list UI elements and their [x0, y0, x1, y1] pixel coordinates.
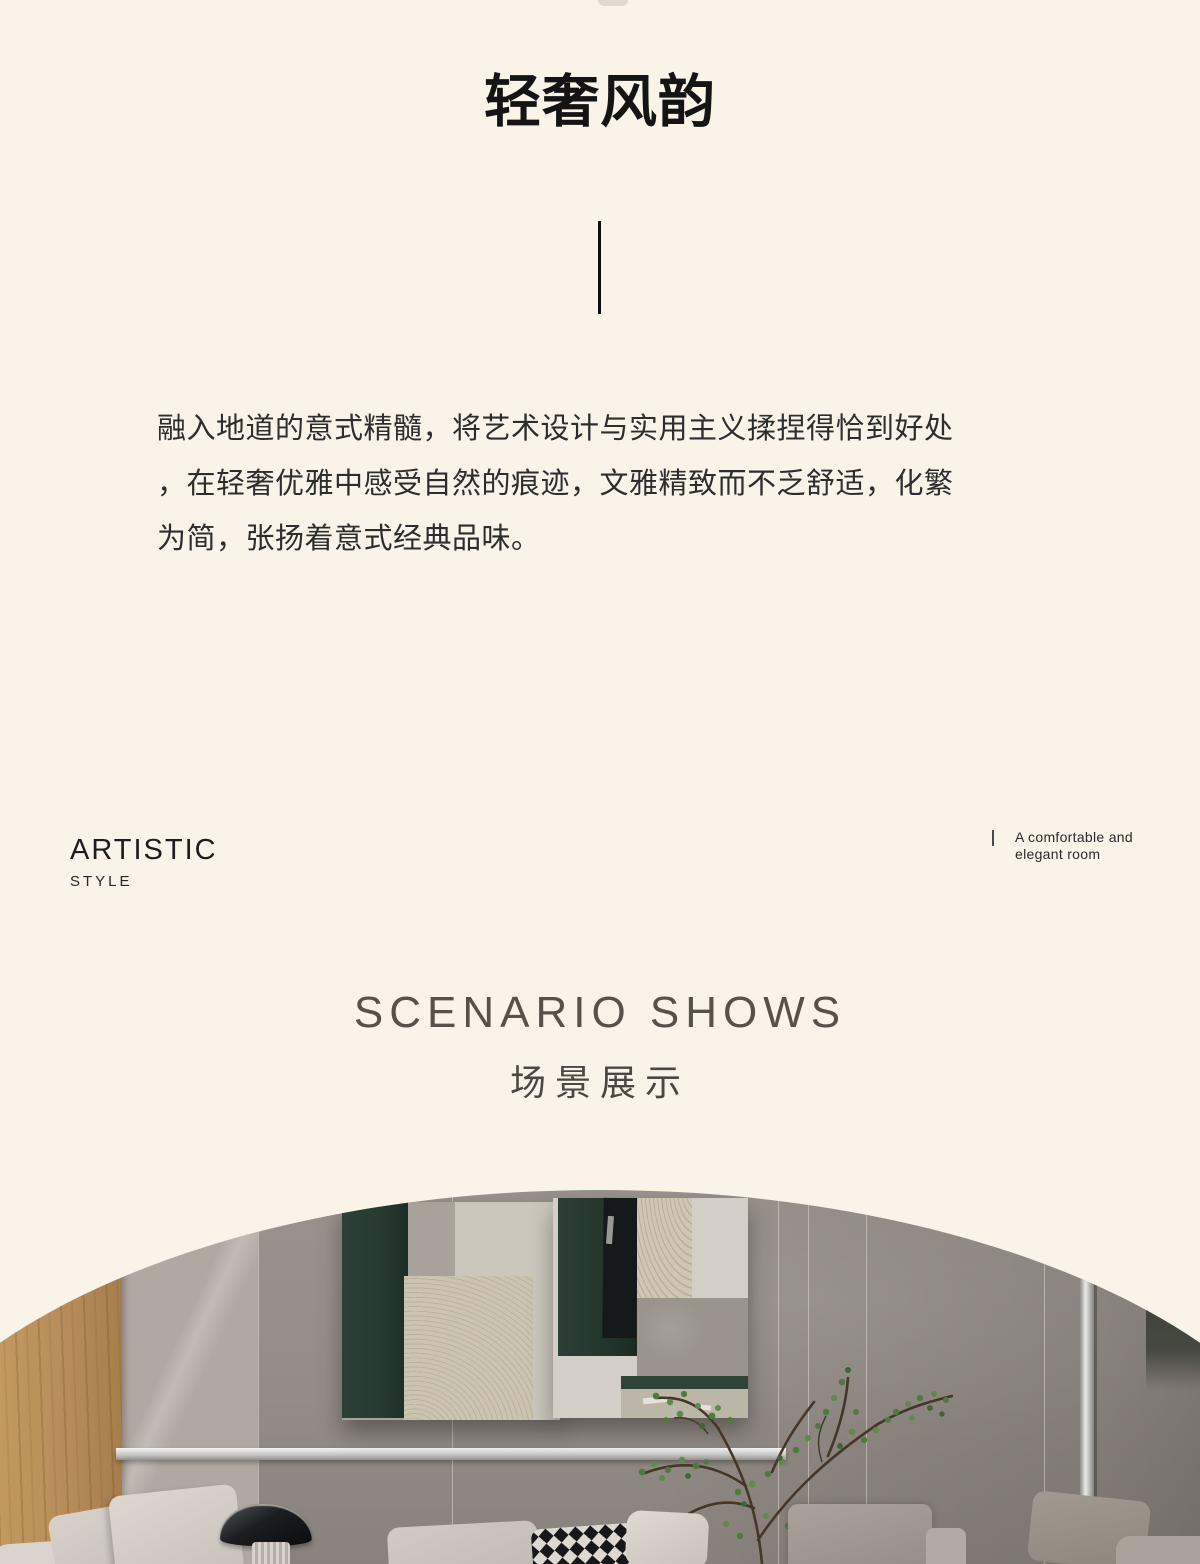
white-pillow: [625, 1510, 710, 1564]
product-detail-page: 轻奢风韵 融入地道的意式精髓，将艺术设计与实用主义揉捏得恰到好处 ，在轻奢优雅中…: [0, 0, 1200, 1564]
sofa-cushion: [387, 1520, 539, 1564]
scenario-photo: [0, 1190, 1200, 1564]
scenario-heading-zh: 场景展示: [0, 1054, 1200, 1106]
top-edge-artifact: [598, 0, 628, 6]
caption-divider-bar: [992, 830, 994, 846]
dark-wall-panel: [1146, 1190, 1200, 1390]
intro-line: ，在轻奢优雅中感受自然的痕迹，文雅精致而不乏舒适，化繁: [157, 457, 1057, 512]
armchair-arm: [1116, 1536, 1200, 1564]
sofa-arm: [926, 1528, 966, 1564]
vertical-divider: [598, 221, 601, 314]
caption-line: A comfortable and: [1015, 829, 1175, 846]
intro-line: 融入地道的意式精髓，将艺术设计与实用主义揉捏得恰到好处: [157, 402, 1057, 457]
scenario-heading-en: SCENARIO SHOWS: [0, 988, 1200, 1038]
artistic-style-label: ARTISTIC STYLE: [70, 836, 218, 890]
caption-line: elegant room: [1015, 846, 1175, 863]
intro-paragraph: 融入地道的意式精髓，将艺术设计与实用主义揉捏得恰到好处 ，在轻奢优雅中感受自然的…: [157, 402, 1057, 567]
houndstooth-pillow: [531, 1522, 638, 1564]
table-lamp-stem: [252, 1542, 290, 1564]
art-textured-panel: [404, 1276, 533, 1420]
art-green-block: [342, 1202, 408, 1418]
intro-line: 为简，张扬着意式经典品味。: [157, 512, 1057, 567]
wall-art-left: [342, 1202, 560, 1420]
section-title: 轻奢风韵: [0, 68, 1200, 136]
artistic-subtitle: STYLE: [70, 873, 218, 890]
sofa-back-cushion: [788, 1504, 932, 1564]
english-caption: A comfortable and elegant room: [1015, 829, 1175, 862]
artistic-title: ARTISTIC: [70, 836, 218, 865]
